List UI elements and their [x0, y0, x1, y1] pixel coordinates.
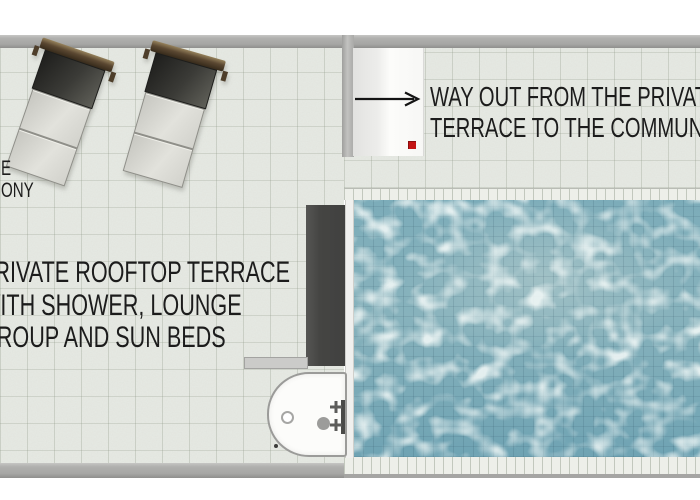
balcony-label-line2: ONY: [1, 180, 34, 202]
shower-drain: [281, 411, 294, 424]
way-out-label: WAY OUT FROM THE PRIVATE TERRACE TO THE …: [430, 81, 700, 143]
exit-arrow-icon: [352, 91, 424, 107]
terrace-label-line1: PRIVATE ROOFTOP TERRACE: [0, 257, 290, 290]
exit-marker-red-square: [408, 141, 416, 149]
water-caustics: [353, 200, 700, 457]
rooftop-terrace-floor-plan: E ONY PRIVATE ROOFTOP TERRACE WITH SHOWE…: [0, 0, 700, 500]
pool-coping-bottom: [344, 457, 700, 478]
balcony-label-clipped: E ONY: [1, 158, 34, 202]
shower-tray: [267, 372, 347, 457]
way-out-label-line2: TERRACE TO THE COMMUNAL: [430, 112, 700, 143]
way-out-label-line1: WAY OUT FROM THE PRIVATE: [430, 81, 700, 112]
terrace-label-line3: GROUP AND SUN BEDS: [0, 322, 290, 355]
shower-valve-icon: [329, 398, 347, 436]
bottom-wall: [0, 463, 344, 478]
balcony-label-line1: E: [1, 158, 34, 180]
shower-foot-detail: [274, 444, 278, 448]
bench-ledge: [244, 357, 308, 369]
swimming-pool: [353, 200, 700, 457]
terrace-description-label: PRIVATE ROOFTOP TERRACE WITH SHOWER, LOU…: [0, 257, 290, 355]
privacy-wall: [306, 205, 345, 366]
pool-coping-top: [344, 188, 700, 200]
terrace-label-line2: WITH SHOWER, LOUNGE: [0, 290, 290, 323]
